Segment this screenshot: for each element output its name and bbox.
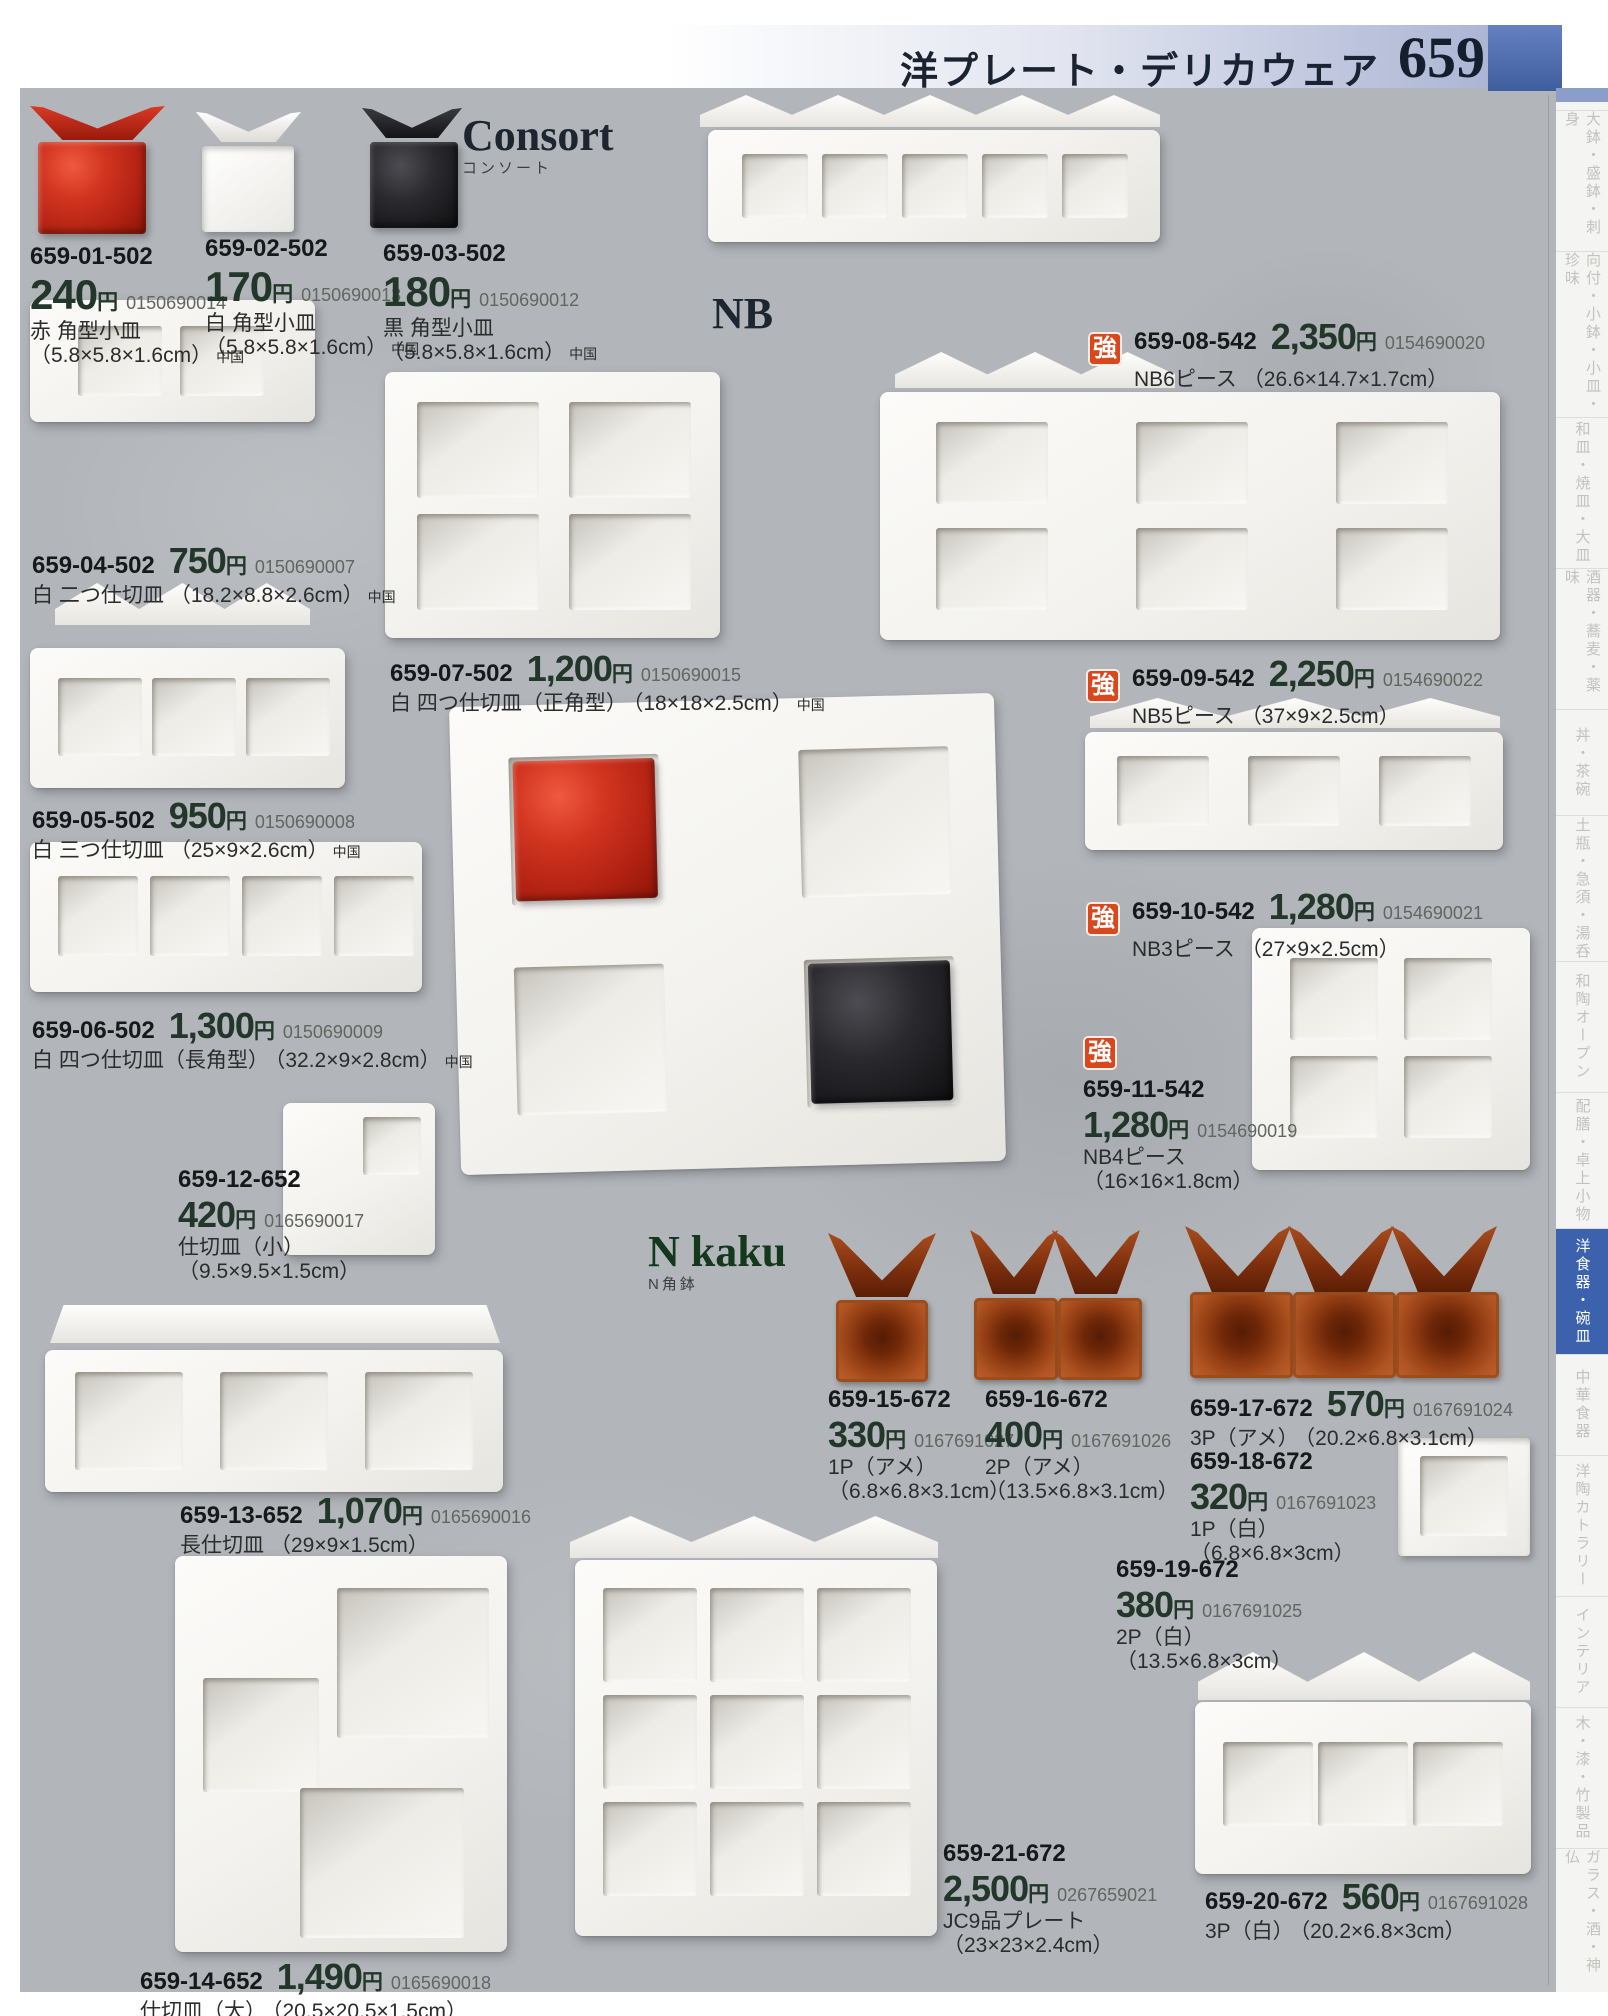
price: 560 <box>1342 1876 1399 1917</box>
n-kaku-subtitle: N角鉢 <box>648 1277 786 1292</box>
consort-title: Consort <box>462 110 614 161</box>
sidebar-divider <box>1548 95 1549 1985</box>
strong-badge: 強 <box>1088 332 1122 366</box>
compartment-well <box>300 1788 464 1938</box>
product-code: 659-17-672 <box>1190 1395 1313 1422</box>
product-info: 659-16-672 400円0167691026 2P（アメ） （13.5×6… <box>985 1386 1179 1504</box>
compartment-well <box>1290 958 1378 1040</box>
white-1p-dish <box>1398 1438 1530 1556</box>
jan-code: 0167691028 <box>1428 1893 1528 1913</box>
product-size: （29×9×1.5cm） <box>270 1534 429 1557</box>
catalog-page: 洋プレート・デリカウェア 659 大鉢・盛鉢・刺身 向付・小鉢・小皿・珍味 和皿… <box>0 0 1608 2016</box>
origin: 中国 <box>333 844 361 860</box>
code-price-line: 659-05-502950円0150690008 <box>32 795 361 837</box>
sidebar-tab: 丼・茶碗 <box>1556 709 1608 815</box>
product-name: 白 二つ仕切皿 <box>32 584 164 607</box>
sidebar-tab: 酒器・蕎麦・薬味 <box>1556 568 1608 709</box>
nine-well-plate-side-view <box>570 1516 938 1558</box>
sidebar-tab: ガラス・酒・神仏 <box>1556 1848 1608 1984</box>
yen-suffix: 円 <box>254 1020 275 1043</box>
compartment-well <box>152 678 236 756</box>
product-code: 659-13-652 <box>180 1502 303 1529</box>
product-code: 659-04-502 <box>32 552 155 579</box>
compartment-well <box>1223 1742 1313 1826</box>
sidebar-tab: 中華食器 <box>1556 1354 1608 1455</box>
price: 330 <box>828 1414 885 1455</box>
sidebar-tab: 配膳・卓上小物 <box>1556 1092 1608 1228</box>
compartment-well <box>1117 756 1209 826</box>
compartment-well <box>936 528 1048 610</box>
name-size-line: 3P（白）（20.2×6.8×3cm） <box>1205 1920 1528 1944</box>
product-size: （18×18×2.5cm） <box>633 692 793 715</box>
code-price-line: 659-04-502750円0150690007 <box>32 540 396 582</box>
product-name: 3P（白） <box>1205 1920 1294 1943</box>
name-size-line: 長仕切皿（29×9×1.5cm） <box>180 1534 531 1558</box>
name-size-line: 白 三つ仕切皿（25×9×2.6cm）中国 <box>32 839 361 863</box>
compartment-well <box>203 1678 319 1792</box>
product-info: 659-20-672560円0167691028 3P（白）（20.2×6.8×… <box>1205 1876 1528 1944</box>
compartment-well <box>1404 1056 1492 1138</box>
consort-subtitle: コンソート <box>462 161 614 176</box>
product-code: 659-16-672 <box>985 1386 1179 1414</box>
price: 1,200 <box>527 648 612 689</box>
yen-suffix: 円 <box>1356 331 1377 354</box>
amber-dish-2p <box>1058 1298 1142 1380</box>
compartment-well <box>1336 422 1448 504</box>
page-title: 洋プレート・デリカウェア <box>660 40 1380 95</box>
yen-suffix: 円 <box>402 1505 423 1528</box>
compartment-well <box>742 154 808 218</box>
product-info: 659-05-502950円0150690008 白 三つ仕切皿（25×9×2.… <box>32 795 361 863</box>
amber-dish-3p <box>1293 1292 1396 1378</box>
price: 1,280 <box>1083 1104 1168 1145</box>
price: 420 <box>178 1194 235 1235</box>
black-dish-top-view <box>370 142 458 228</box>
price: 2,350 <box>1271 316 1356 357</box>
product-code: 659-20-672 <box>1205 1888 1328 1915</box>
name-size-line: 白 四つ仕切皿（長角型）（32.2×9×2.8cm）中国 <box>32 1049 473 1073</box>
jan-code: 0154690019 <box>1197 1121 1297 1141</box>
compartment-well <box>603 1802 697 1896</box>
name-size-line: 仕切皿（大）（20.5×20.5×1.5cm） <box>140 2000 491 2016</box>
strong-badge: 強 <box>1083 1036 1117 1070</box>
price-line: 420円0165690017 <box>178 1194 364 1236</box>
product-size: （27×9×2.5cm） <box>1241 938 1400 961</box>
compartment-well <box>1318 1742 1408 1826</box>
compartment-well <box>936 422 1048 504</box>
compartment-well <box>1413 1742 1503 1826</box>
compartment-well <box>710 1695 804 1789</box>
compartment-well <box>603 1695 697 1789</box>
product-size: （20.5×20.5×1.5cm） <box>272 2000 467 2016</box>
product-code: 659-21-672 <box>943 1840 1157 1868</box>
yen-suffix: 円 <box>1028 1883 1049 1906</box>
name-size-line: NB5ピース（37×9×2.5cm） <box>1086 705 1483 729</box>
sidebar-tab: 土瓶・急須・湯呑 <box>1556 815 1608 961</box>
product-code: 659-12-652 <box>178 1166 364 1194</box>
product-code: 659-06-502 <box>32 1017 155 1044</box>
product-name: JC9品プレート <box>943 1910 1157 1934</box>
product-info: 659-03-502 180円0150690012 黒 角型小皿 （5.8×5.… <box>383 240 597 365</box>
black-dish-in-plate <box>808 960 954 1104</box>
jan-code: 0167691023 <box>1276 1493 1376 1513</box>
yen-suffix: 円 <box>612 663 633 686</box>
code-price-line: 659-13-6521,070円0165690016 <box>180 1490 531 1532</box>
code-price-line: 659-07-5021,200円0150690015 <box>390 648 825 690</box>
jan-code: 0154690022 <box>1383 670 1483 690</box>
compartment-well <box>1379 756 1471 826</box>
sidebar-tab: 洋陶カトラリー <box>1556 1455 1608 1596</box>
compartment-well <box>514 964 668 1116</box>
product-name: 白 四つ仕切皿（正角型） <box>390 692 627 715</box>
nb5-tray <box>880 392 1500 640</box>
price-line: 2,500円0267659021 <box>943 1868 1157 1910</box>
product-size: （16×16×1.8cm） <box>1083 1170 1297 1194</box>
price-line: 180円0150690012 <box>383 268 597 317</box>
sidebar-tab-active: 洋食器・碗皿 <box>1556 1228 1608 1354</box>
product-code: 659-18-672 <box>1190 1448 1376 1476</box>
price: 1,490 <box>277 1956 362 1997</box>
nb3-tray <box>1085 732 1503 850</box>
compartment-well <box>569 402 691 498</box>
jan-code: 0154690021 <box>1383 903 1483 923</box>
name-size-line: 白 二つ仕切皿（18.2×8.8×2.6cm）中国 <box>32 584 396 608</box>
compartment-well <box>798 746 952 898</box>
price: 170 <box>205 263 272 310</box>
jan-code: 0150690008 <box>255 812 355 832</box>
compartment-well <box>220 1372 328 1470</box>
red-dish-top-view <box>38 142 146 234</box>
price-line: 320円0167691023 <box>1190 1476 1376 1518</box>
product-code: 659-05-502 <box>32 807 155 834</box>
product-size: （32.2×9×2.8cm） <box>275 1049 441 1072</box>
code-price-line: 659-20-672560円0167691028 <box>1205 1876 1528 1918</box>
product-info: 強 659-11-542 1,280円0154690019 NB4ピース （16… <box>1083 1036 1297 1194</box>
yen-suffix: 円 <box>272 283 293 306</box>
yen-suffix: 円 <box>1354 668 1375 691</box>
product-code: 659-14-652 <box>140 1968 263 1995</box>
yen-suffix: 円 <box>226 810 247 833</box>
jan-code: 0150690007 <box>255 557 355 577</box>
sidebar-tab: 木・漆・竹製品 <box>1556 1707 1608 1848</box>
price: 1,300 <box>169 1005 254 1046</box>
page-number: 659 <box>1398 24 1485 91</box>
name-size-line: 白 四つ仕切皿（正角型）（18×18×2.5cm）中国 <box>390 692 825 716</box>
size-line: （5.8×5.8×1.6cm）中国 <box>383 341 597 365</box>
compartment-well <box>337 1588 489 1738</box>
sidebar-tab: 向付・小鉢・小皿・珍味 <box>1556 251 1608 417</box>
product-info: 強659-10-5421,280円0154690021 NB3ピース（27×9×… <box>1086 886 1483 962</box>
product-info: 659-17-672570円0167691024 3P（アメ）（20.2×6.8… <box>1190 1383 1513 1451</box>
origin: 中国 <box>445 1054 473 1070</box>
product-name: 白 三つ仕切皿 <box>32 839 164 862</box>
compartment-well <box>1062 154 1128 218</box>
section-title-nb: NB <box>712 288 773 339</box>
code-price-line: 強659-09-5422,250円0154690022 <box>1086 653 1483 703</box>
product-name: 2P（白） <box>1116 1626 1302 1650</box>
product-size: （5.8×5.8×1.6cm） <box>205 336 387 359</box>
nb6-tray <box>708 130 1160 242</box>
product-name: NB3ピース <box>1132 938 1235 961</box>
sidebar-tab: 大鉢・盛鉢・刺身 <box>1556 110 1608 251</box>
product-info: 659-12-652 420円0165690017 仕切皿（小） （9.5×9.… <box>178 1166 364 1284</box>
compartment-well <box>1136 528 1248 610</box>
yen-suffix: 円 <box>1168 1119 1189 1142</box>
product-code: 659-10-542 <box>1132 898 1255 925</box>
compartment-well <box>58 876 138 956</box>
compartment-well <box>1336 528 1448 610</box>
jan-code: 0165690018 <box>391 1973 491 1993</box>
nb-title: NB <box>712 288 773 339</box>
product-size: （18.2×8.8×2.6cm） <box>170 584 364 607</box>
yen-suffix: 円 <box>1384 1398 1405 1421</box>
compartment-well <box>334 876 414 956</box>
compartment-well <box>75 1372 183 1470</box>
origin: 中国 <box>569 346 597 362</box>
compartment-well <box>58 678 142 756</box>
product-size: （5.8×5.8×1.6cm） <box>30 344 212 367</box>
compartment-well <box>569 514 691 610</box>
compartment-well <box>982 154 1048 218</box>
compartment-well <box>710 1588 804 1682</box>
sidebar-tab: 和皿・焼皿・大皿 <box>1556 417 1608 568</box>
product-name: 3P（アメ） <box>1190 1427 1299 1450</box>
yen-suffix: 円 <box>226 555 247 578</box>
large-divided-plate <box>175 1556 507 1952</box>
price: 950 <box>169 795 226 836</box>
product-info: 659-07-5021,200円0150690015 白 四つ仕切皿（正角型）（… <box>390 648 825 716</box>
product-name: NB5ピース <box>1132 705 1235 728</box>
sidebar-tab: インテリア <box>1556 1596 1608 1707</box>
yen-suffix: 円 <box>1247 1491 1268 1514</box>
price: 240 <box>30 271 97 318</box>
compartment-well <box>246 678 330 756</box>
code-price-line: 659-14-6521,490円0165690018 <box>140 1956 491 1998</box>
price-line: 400円0167691026 <box>985 1414 1179 1456</box>
code-price-line: 659-06-5021,300円0150690009 <box>32 1005 473 1047</box>
product-code: 659-03-502 <box>383 240 597 268</box>
yen-suffix: 円 <box>1173 1599 1194 1622</box>
product-name: 黒 角型小皿 <box>383 317 597 341</box>
yen-suffix: 円 <box>362 1971 383 1994</box>
compartment-well <box>1248 756 1340 826</box>
compartment-well <box>902 154 968 218</box>
compartment-well <box>1420 1456 1508 1536</box>
compartment-well <box>1136 422 1248 504</box>
jan-code: 0150690015 <box>641 665 741 685</box>
strong-badge: 強 <box>1086 669 1120 703</box>
price: 750 <box>169 540 226 581</box>
compartment-well <box>822 154 888 218</box>
compartment-well <box>603 1588 697 1682</box>
amber-dish-3p <box>1396 1292 1499 1378</box>
price-line: 1,280円0154690019 <box>1083 1104 1297 1146</box>
compartment-well <box>363 1117 421 1175</box>
long-tray-lid-side-view <box>50 1305 500 1343</box>
strong-badge: 強 <box>1086 902 1120 936</box>
jan-code: 0165690016 <box>431 1507 531 1527</box>
sidebar-top-band <box>1556 88 1608 102</box>
product-size: （20.2×6.8×3cm） <box>1300 1920 1466 1943</box>
yen-suffix: 円 <box>450 288 471 311</box>
product-name: 2P（アメ） <box>985 1456 1179 1480</box>
product-code: 659-19-672 <box>1116 1556 1302 1584</box>
product-info: 659-19-672 380円0167691025 2P（白） （13.5×6.… <box>1116 1556 1302 1674</box>
amber-dish-2p <box>974 1298 1058 1380</box>
product-name: NB4ピース <box>1083 1146 1297 1170</box>
compartment-well <box>150 876 230 956</box>
price: 570 <box>1327 1383 1384 1424</box>
compartment-well <box>1290 1056 1378 1138</box>
product-size: （23×23×2.4cm） <box>943 1934 1157 1958</box>
three-compartment-tray <box>30 648 345 788</box>
product-name: NB6ピース <box>1134 368 1237 391</box>
product-name: 仕切皿（小） <box>178 1236 364 1260</box>
long-divided-tray <box>45 1350 503 1492</box>
section-title-consort: Consort コンソート <box>462 110 614 176</box>
code-price-line: 強659-08-5422,350円0154690020 <box>1088 316 1485 366</box>
code-price-line: 659-17-672570円0167691024 <box>1190 1383 1513 1425</box>
price: 1,280 <box>1269 886 1354 927</box>
compartment-well <box>365 1372 473 1470</box>
white-dish-top-view <box>202 146 294 232</box>
price: 180 <box>383 268 450 315</box>
product-code: 659-08-542 <box>1134 328 1257 355</box>
price: 380 <box>1116 1584 1173 1625</box>
name-size-line: NB3ピース（27×9×2.5cm） <box>1086 938 1483 962</box>
yen-suffix: 円 <box>1354 901 1375 924</box>
product-size: （26.6×14.7×1.7cm） <box>1243 368 1448 391</box>
product-info: 659-14-6521,490円0165690018 仕切皿（大）（20.5×2… <box>140 1956 491 2016</box>
compartment-well <box>710 1802 804 1896</box>
compartment-well <box>242 876 322 956</box>
styled-photo-plate <box>449 693 1006 1175</box>
price: 2,500 <box>943 1868 1028 1909</box>
amber-dish-3p <box>1190 1292 1293 1378</box>
jan-code: 0154690020 <box>1385 333 1485 353</box>
red-dish-in-plate <box>512 758 658 902</box>
product-size: （37×9×2.5cm） <box>1241 705 1400 728</box>
product-size: （25×9×2.6cm） <box>170 839 329 862</box>
price: 2,250 <box>1269 653 1354 694</box>
product-size: （9.5×9.5×1.5cm） <box>178 1260 364 1284</box>
product-name: 長仕切皿 <box>180 1534 264 1557</box>
product-size: （20.2×6.8×3.1cm） <box>1305 1427 1488 1450</box>
header-corner-block <box>1488 25 1562 91</box>
product-info: 659-13-6521,070円0165690016 長仕切皿（29×9×1.5… <box>180 1490 531 1558</box>
jan-code: 0165690017 <box>264 1211 364 1231</box>
section-title-n-kaku: N kaku N角鉢 <box>648 1226 786 1292</box>
product-size: （5.8×5.8×1.6cm） <box>383 341 565 364</box>
name-size-line: NB6ピース（26.6×14.7×1.7cm） <box>1088 368 1485 392</box>
jan-code: 0167691026 <box>1071 1431 1171 1451</box>
price: 400 <box>985 1414 1042 1455</box>
sidebar-tab: 和陶オープン <box>1556 961 1608 1092</box>
product-code: 659-09-542 <box>1132 665 1255 692</box>
compartment-well <box>417 402 539 498</box>
jan-code: 0167691024 <box>1413 1400 1513 1420</box>
yen-suffix: 円 <box>97 291 118 314</box>
compartment-well <box>817 1695 911 1789</box>
origin: 中国 <box>797 697 825 713</box>
four-compartment-long-tray <box>30 842 422 992</box>
product-info: 659-18-672 320円0167691023 1P（白） （6.8×6.8… <box>1190 1448 1376 1566</box>
white-3p-tray <box>1195 1702 1531 1874</box>
product-name: 1P（白） <box>1190 1518 1376 1542</box>
product-info: 659-06-5021,300円0150690009 白 四つ仕切皿（長角型）（… <box>32 1005 473 1073</box>
four-compartment-square-plate <box>385 372 720 638</box>
yen-suffix: 円 <box>1042 1429 1063 1452</box>
product-code: 659-11-542 <box>1083 1076 1297 1104</box>
badge-line: 強 <box>1083 1036 1297 1070</box>
code-price-line: 強659-10-5421,280円0154690021 <box>1086 886 1483 936</box>
price: 1,070 <box>317 1490 402 1531</box>
product-name: 白 四つ仕切皿（長角型） <box>32 1049 269 1072</box>
product-info: 強659-09-5422,250円0154690022 NB5ピース（37×9×… <box>1086 653 1483 729</box>
product-info: 659-04-502750円0150690007 白 二つ仕切皿（18.2×8.… <box>32 540 396 608</box>
compartment-well <box>817 1802 911 1896</box>
origin: 中国 <box>368 589 396 605</box>
jan-code: 0267659021 <box>1057 1885 1157 1905</box>
product-size: （13.5×6.8×3.1cm） <box>985 1480 1179 1504</box>
product-info: 659-21-672 2,500円0267659021 JC9品プレート （23… <box>943 1840 1157 1958</box>
compartment-well <box>817 1588 911 1682</box>
nine-well-plate <box>575 1560 937 1936</box>
category-tabs: 大鉢・盛鉢・刺身 向付・小鉢・小皿・珍味 和皿・焼皿・大皿 酒器・蕎麦・薬味 丼… <box>1556 110 1608 1984</box>
compartment-well <box>417 514 539 610</box>
jan-code: 0167691025 <box>1202 1601 1302 1621</box>
yen-suffix: 円 <box>235 1209 256 1232</box>
product-size: （13.5×6.8×3cm） <box>1116 1650 1302 1674</box>
compartment-well <box>1404 958 1492 1040</box>
n-kaku-title: N kaku <box>648 1226 786 1277</box>
product-info: 強659-08-5422,350円0154690020 NB6ピース（26.6×… <box>1088 316 1485 392</box>
yen-suffix: 円 <box>1399 1891 1420 1914</box>
product-code: 659-07-502 <box>390 660 513 687</box>
product-name: 仕切皿（大） <box>140 2000 266 2016</box>
price-line: 380円0167691025 <box>1116 1584 1302 1626</box>
jan-code: 0150690012 <box>479 290 579 310</box>
jan-code: 0150690009 <box>283 1022 383 1042</box>
amber-dish-1p <box>836 1300 928 1382</box>
price: 320 <box>1190 1476 1247 1517</box>
yen-suffix: 円 <box>885 1429 906 1452</box>
